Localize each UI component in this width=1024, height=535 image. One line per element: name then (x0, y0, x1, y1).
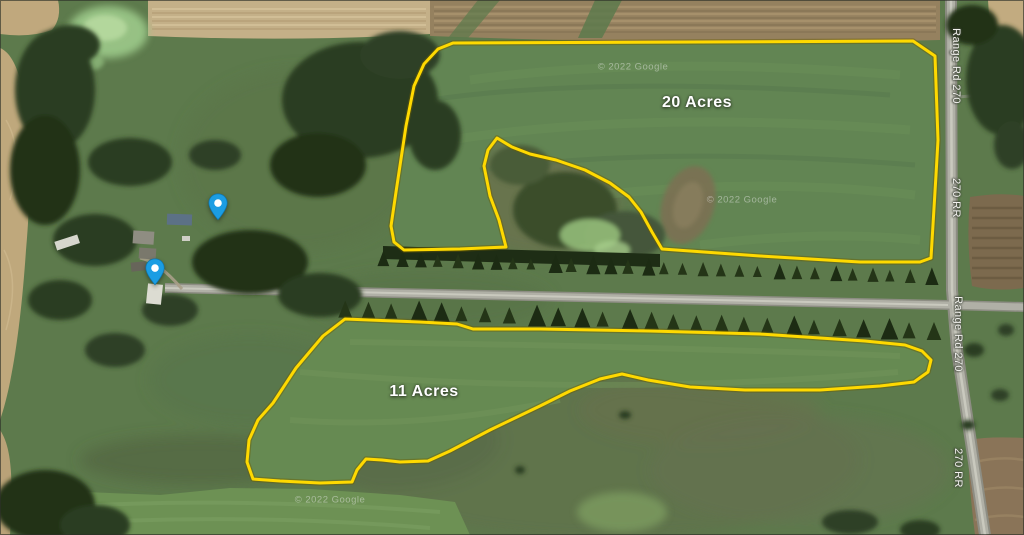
pin-hole (151, 264, 159, 272)
parcel-label-11-acres: 11 Acres (389, 383, 458, 401)
tree-cluster (88, 138, 172, 186)
blue-map-pin-north[interactable] (208, 193, 229, 226)
road-label-range-rd-270-top: Range Rd 270 (950, 28, 962, 104)
tree-cluster (10, 115, 80, 225)
tree-cluster (409, 100, 461, 170)
pin-hole (214, 199, 222, 207)
grass-patch (577, 492, 667, 532)
tree-cluster (189, 140, 241, 170)
road-label-range-rd-270-lower: Range Rd 270 (952, 296, 964, 372)
building (182, 236, 190, 241)
tree-cluster (28, 280, 92, 320)
map-pin-icon (145, 258, 166, 286)
tree-cluster (85, 333, 145, 367)
tree-cluster (40, 25, 100, 65)
tree-cluster (998, 324, 1014, 336)
tree-cluster (822, 510, 878, 534)
road-label-270-rr-bottom: 270 RR (952, 448, 964, 488)
building (167, 214, 192, 226)
tree-cluster (619, 411, 631, 419)
pin-body (146, 259, 164, 285)
tree-cluster (278, 273, 362, 317)
google-watermark: © 2022 Google (707, 195, 778, 206)
aerial-parcel-map: 20 Acres 11 Acres Range Rd 270 270 RR Ra… (0, 0, 1024, 535)
map-pin-icon (208, 193, 229, 221)
tree-cluster (991, 389, 1009, 401)
google-watermark: © 2022 Google (598, 62, 669, 73)
building (133, 230, 155, 244)
google-watermark: © 2022 Google (295, 495, 366, 506)
blue-map-pin-south[interactable] (145, 258, 166, 291)
tree-cluster (360, 31, 440, 79)
tree-cluster (961, 420, 975, 430)
road-label-270-rr-upper: 270 RR (950, 178, 962, 218)
tree-cluster (270, 133, 366, 197)
parcel-label-20-acres: 20 Acres (662, 94, 732, 112)
tree-cluster (964, 343, 984, 357)
tree-cluster (515, 466, 525, 474)
